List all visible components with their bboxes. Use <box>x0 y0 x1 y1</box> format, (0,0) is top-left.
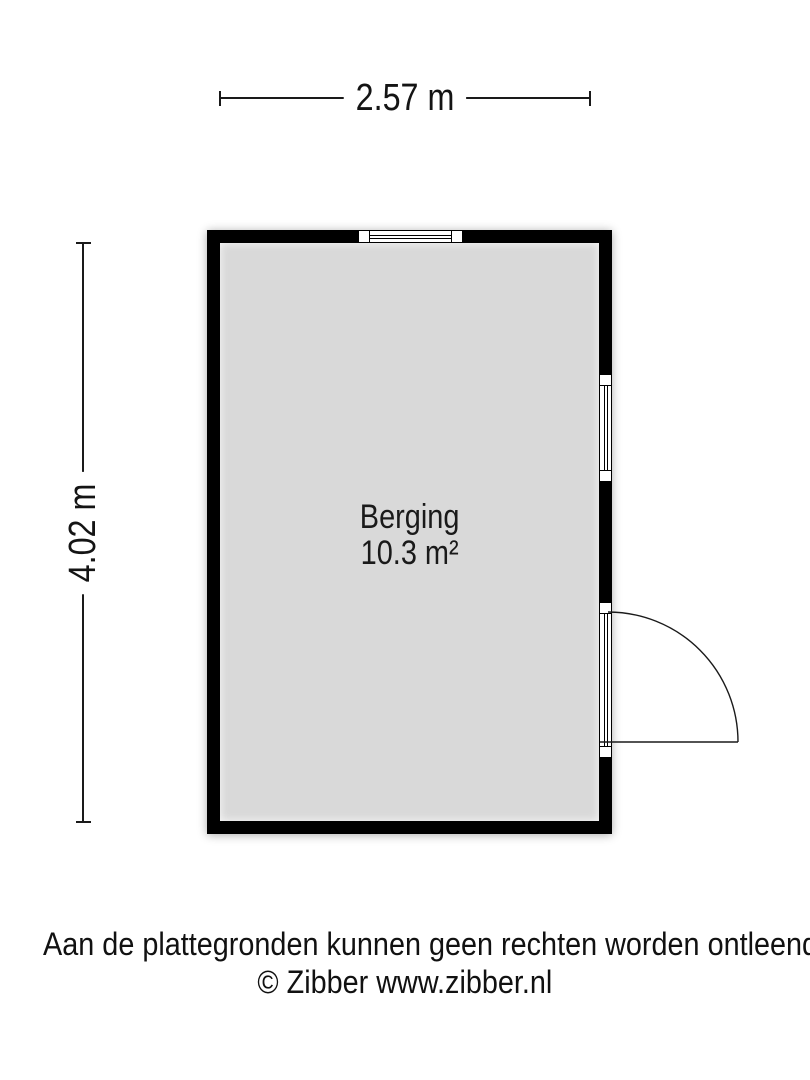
dimension-width-label: 2.57 m <box>344 76 467 120</box>
room-area: 10.3 m² <box>361 535 459 571</box>
window-right-jamb-top <box>599 374 612 386</box>
window-top-glazing <box>370 230 451 243</box>
dimension-height-label: 4.02 m <box>61 471 105 594</box>
dimension-width-tick-right <box>589 91 591 106</box>
dimension-height-tick-bottom <box>76 821 91 823</box>
dimension-height-tick-top <box>76 242 91 244</box>
floor-plan-page: 2.57 m 4.02 m Berging 10.3 m² <box>0 0 810 1080</box>
window-top <box>358 230 463 243</box>
window-right-glazing <box>599 386 612 470</box>
window-top-jamb-right <box>451 230 463 243</box>
room-label: Berging 10.3 m² <box>220 499 599 571</box>
window-top-jamb-left <box>358 230 370 243</box>
footer-disclaimer: Aan de plattegronden kunnen geen rechten… <box>43 925 810 963</box>
dimension-width-tick-left <box>219 91 221 106</box>
room-name: Berging <box>360 499 460 535</box>
door-swing-arc <box>598 606 748 751</box>
footer-copyright: © Zibber www.zibber.nl <box>258 963 553 1001</box>
window-right-jamb-bottom <box>599 470 612 482</box>
room-floor: Berging 10.3 m² <box>220 243 599 821</box>
exterior-walls: Berging 10.3 m² <box>207 230 612 834</box>
window-right <box>599 374 612 482</box>
footer: Aan de plattegronden kunnen geen rechten… <box>0 925 810 1001</box>
